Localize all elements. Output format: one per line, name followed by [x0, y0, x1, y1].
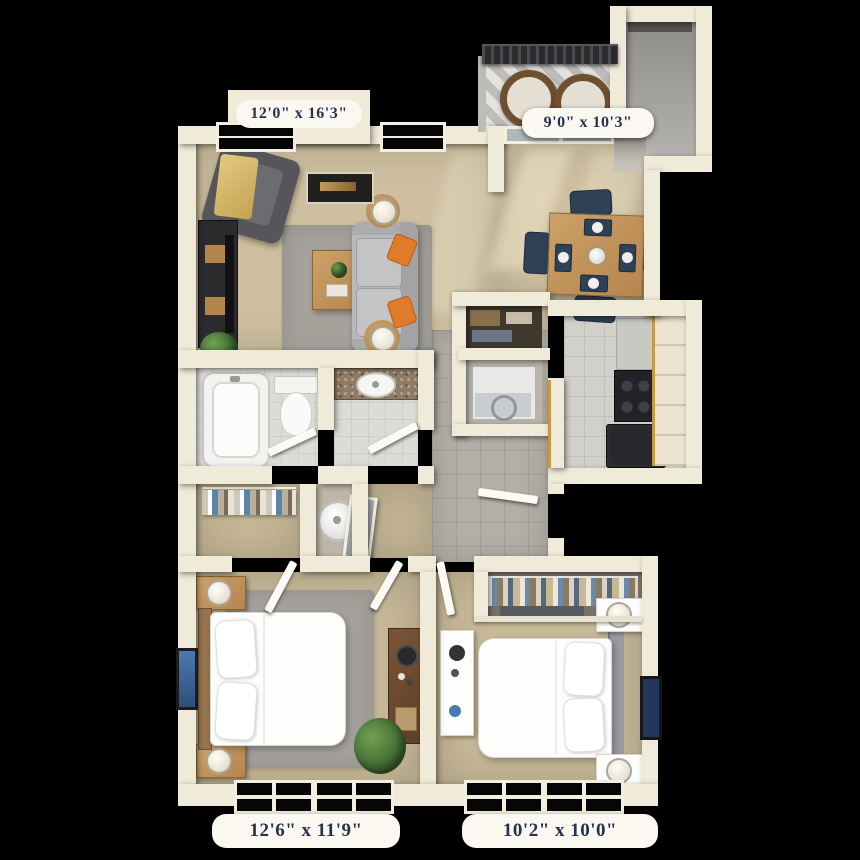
tv-screen	[225, 235, 234, 333]
pillow	[563, 641, 606, 697]
window	[314, 780, 394, 814]
pantry-closet	[466, 306, 542, 348]
exterior-notch	[564, 484, 642, 556]
wall-art	[640, 676, 662, 740]
hanging-clothes	[202, 490, 296, 515]
water-heater-cap	[333, 516, 341, 524]
table-plant	[331, 262, 347, 278]
kitchen-counter	[616, 318, 654, 370]
kitchen-cabinets	[652, 316, 689, 466]
stove	[614, 370, 656, 422]
placemat	[618, 244, 636, 273]
table-lamp	[206, 748, 232, 774]
bathtub	[202, 372, 270, 468]
wall	[452, 292, 550, 306]
decor-cup	[406, 679, 413, 686]
desk	[440, 630, 474, 736]
pantry-shelf-items	[470, 310, 500, 326]
washer	[472, 366, 536, 420]
plate	[622, 252, 633, 263]
pantry-shelf-items	[506, 312, 532, 324]
plate	[558, 252, 569, 263]
window	[544, 780, 624, 814]
wall	[458, 348, 550, 360]
table-lamp	[206, 580, 232, 606]
wall-bath-south	[418, 466, 434, 484]
window	[464, 780, 544, 814]
wall-bath-south	[178, 466, 272, 484]
placemat	[580, 274, 609, 292]
wall-closet-divider	[300, 484, 316, 562]
floor-plant	[354, 718, 406, 774]
duvet-fold	[263, 615, 265, 743]
sink-drain	[372, 381, 379, 388]
floor-lamp	[371, 199, 397, 225]
decor-bowl	[449, 645, 465, 661]
bedroom-1-dimensions: 12'6" x 11'9"	[249, 820, 362, 842]
wall	[452, 424, 550, 436]
fireplace-logs	[320, 182, 356, 191]
centerpiece	[588, 247, 607, 266]
dining-table	[547, 212, 646, 297]
wall-kitchen-north	[548, 300, 702, 316]
floor-plan: 12'0" x 16'3" 9'0" x 10'3" 12'6" x 11'9"…	[0, 0, 860, 860]
washer-door	[491, 395, 517, 421]
balcony-side-rail	[478, 56, 486, 132]
decor-cup	[451, 669, 459, 677]
balcony-railing	[482, 44, 618, 64]
wall-bath-divider	[318, 368, 334, 430]
wall-closet-stub	[474, 572, 488, 618]
wall-kitchen-south	[548, 468, 702, 484]
plate	[588, 278, 599, 289]
pillow	[214, 681, 258, 742]
throw-blanket	[214, 154, 259, 220]
faucet	[230, 376, 240, 382]
books	[326, 284, 348, 297]
decor-bowl	[396, 645, 418, 667]
sink	[356, 372, 396, 398]
wall-kitchen-east	[686, 300, 702, 484]
cabinet-gold-trim	[548, 380, 551, 468]
bedroom-2-label: 10'2" x 10'0"	[462, 814, 658, 848]
wall-bedroom-divider	[420, 572, 436, 806]
decor-cup	[398, 673, 405, 680]
bedroom-1-label: 12'6" x 11'9"	[212, 814, 400, 848]
plate	[592, 222, 603, 233]
window	[234, 780, 314, 814]
bathtub-basin	[212, 382, 260, 458]
window	[380, 122, 446, 152]
wall-bedroom-north	[178, 556, 232, 572]
duvet-fold	[555, 641, 557, 755]
living-room-dimensions: 12'0" x 16'3"	[250, 105, 347, 123]
wall-vanity-east	[418, 350, 434, 430]
wall-bath-south	[318, 466, 368, 484]
bedroom-2-dimensions: 10'2" x 10'0"	[503, 820, 617, 842]
closet-track	[474, 616, 642, 622]
closet-runner-rug	[500, 606, 584, 616]
wall-bedroom-north	[408, 556, 436, 572]
balcony-dimensions: 9'0" x 10'3"	[544, 114, 633, 132]
wall-corridor-right	[696, 6, 712, 172]
wall-bedroom-north	[300, 556, 370, 572]
wall-art	[176, 648, 198, 710]
fireplace	[306, 172, 374, 204]
wall-closet-divider	[352, 484, 368, 562]
wall-entry	[548, 484, 564, 494]
wall-closet-north	[474, 556, 658, 572]
living-room-label: 12'0" x 16'3"	[236, 100, 362, 128]
wall-stub	[488, 126, 504, 192]
pillow	[563, 697, 606, 753]
placemat	[554, 244, 572, 273]
floor-lamp	[370, 326, 396, 352]
wall-bath-north	[178, 350, 434, 368]
pantry-shelf-items	[472, 330, 512, 342]
closet-shelf	[202, 487, 296, 489]
laundry-closet	[466, 360, 542, 424]
mini-hall-floor	[368, 484, 432, 558]
wall	[452, 292, 466, 436]
balcony-label: 9'0" x 10'3"	[522, 108, 654, 138]
wall-dining-east	[644, 170, 660, 316]
tv-console	[198, 220, 238, 348]
placemat	[584, 219, 613, 237]
decor-vase	[449, 705, 461, 717]
table-lamp	[606, 602, 632, 628]
pillow	[214, 619, 258, 680]
